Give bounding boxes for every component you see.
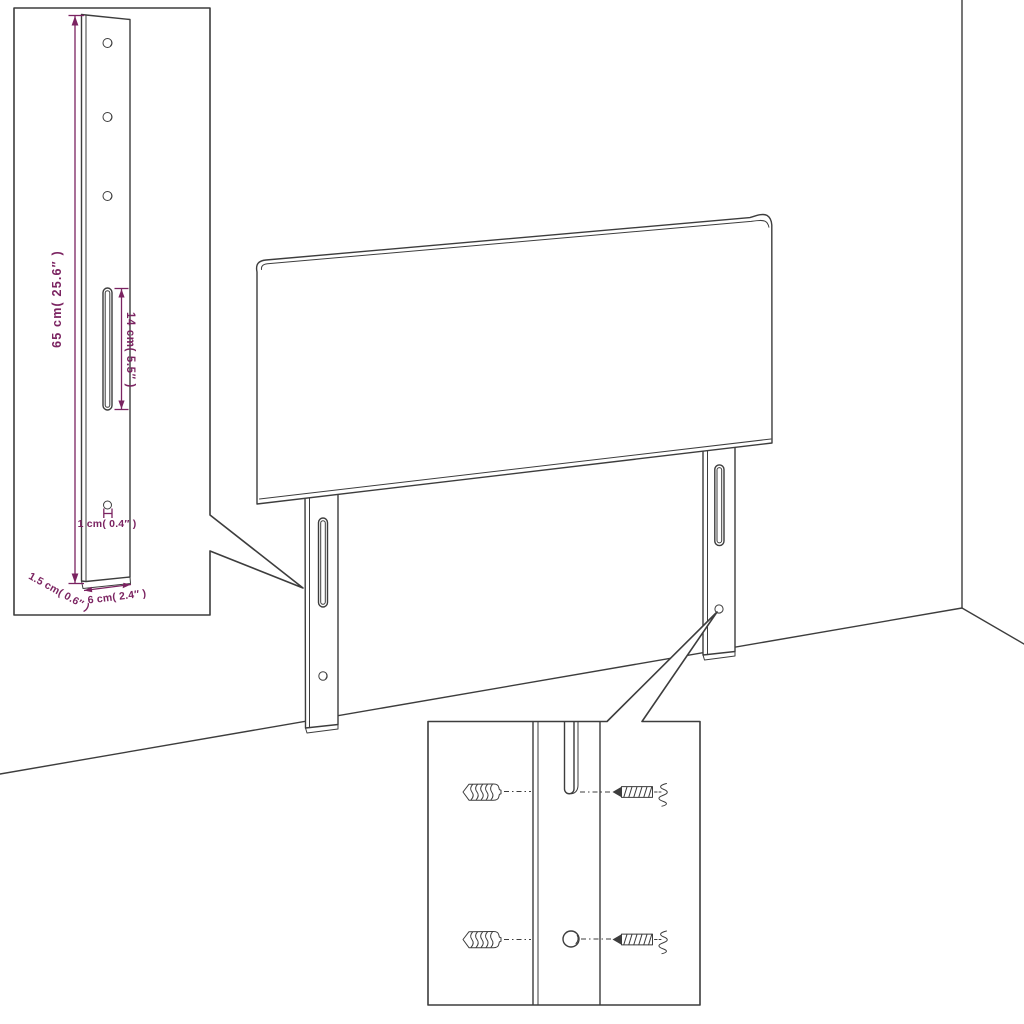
diagram-artwork xyxy=(0,0,1024,1024)
inset-callout-box-2 xyxy=(428,612,717,1005)
leg-height-label: 65 cm( 25.6″ ) xyxy=(50,250,64,348)
slot-length-label: 14 cm( 5.5″ ) xyxy=(124,312,136,388)
hole-diameter-label: 1 cm( 0.4″ ) xyxy=(78,518,137,530)
mounting-detail-inset xyxy=(428,612,717,1005)
diagram-canvas: 65 cm( 25.6″ ) 14 cm( 5.5″ ) 1 cm( 0.4″ … xyxy=(0,0,1024,1024)
headboard-left-leg xyxy=(305,485,338,733)
floor-line-right xyxy=(962,608,1024,644)
headboard-panel xyxy=(257,214,772,504)
